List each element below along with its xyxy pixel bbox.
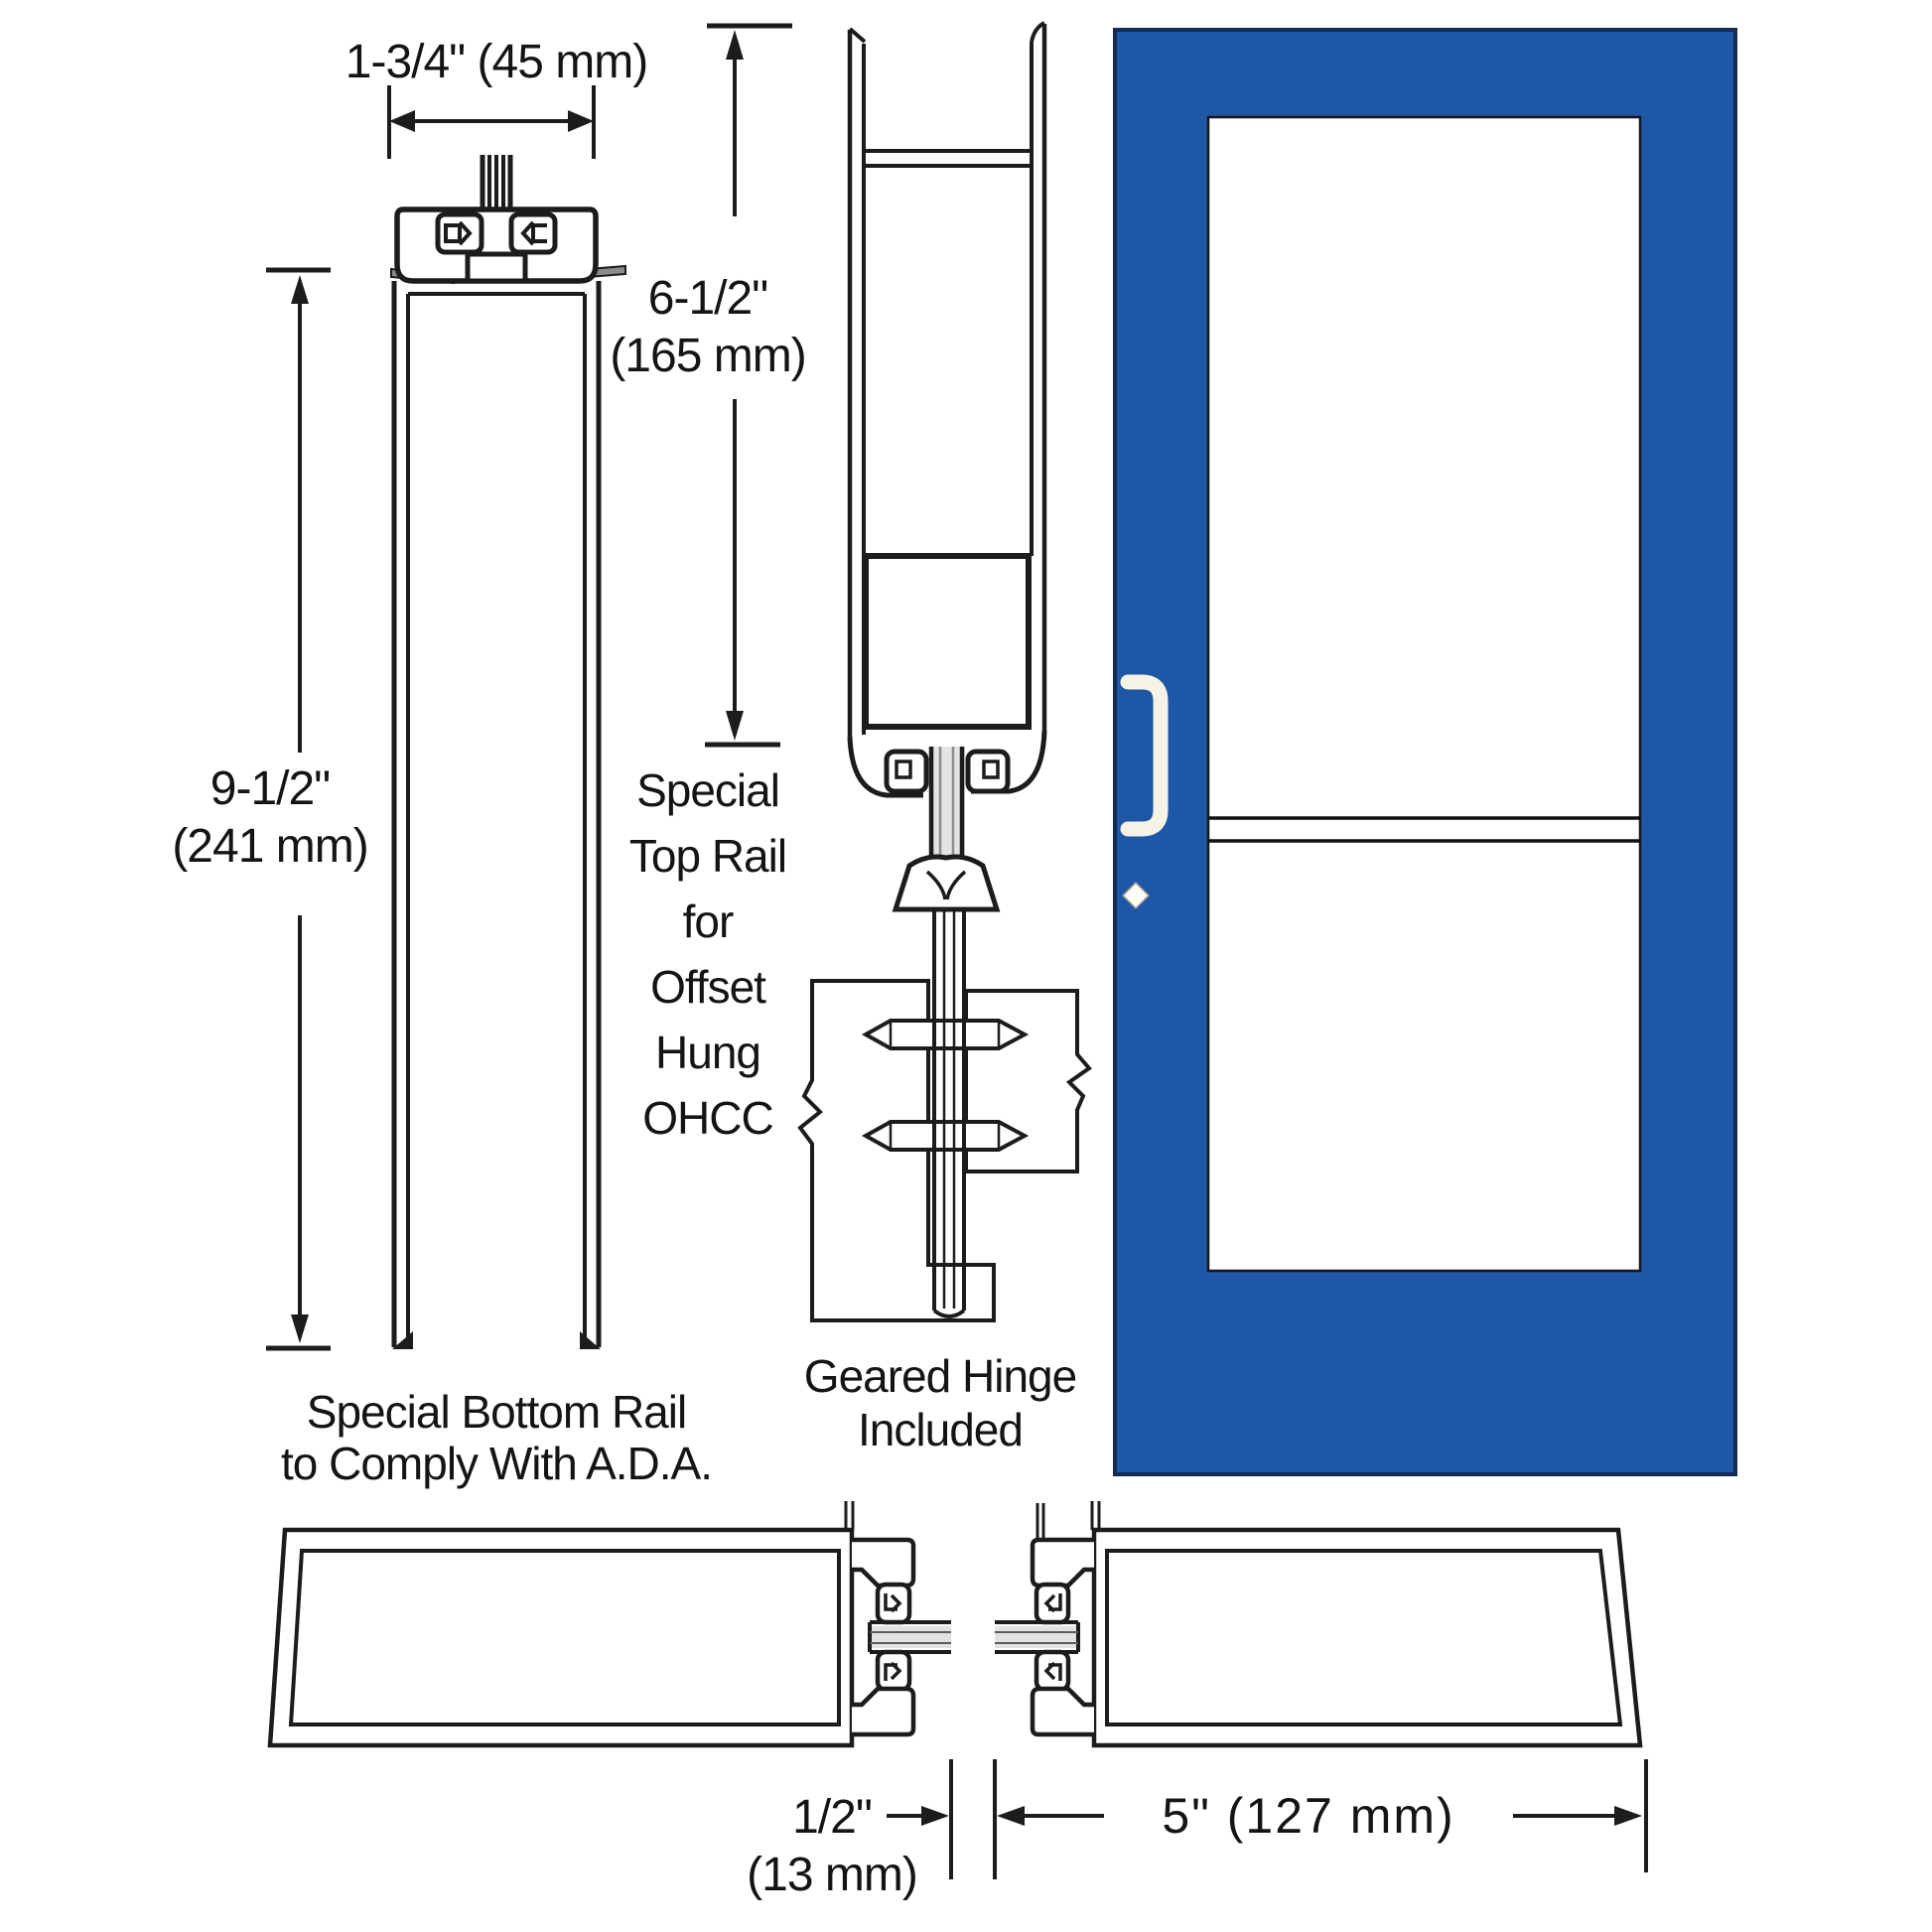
- clip-bottom-left: [878, 1652, 909, 1690]
- dimension-rail-width: 1-3/4" (45 mm): [345, 36, 647, 159]
- top-rail-caption-3: for: [683, 896, 734, 947]
- bottom-rail-section: 1-3/4" (45 mm): [172, 36, 712, 1489]
- arrow-up: [726, 30, 744, 60]
- top-rail-section: 6-1/2" (165 mm): [610, 23, 1089, 1455]
- rail-head: [391, 209, 625, 283]
- arrow-right: [568, 110, 594, 132]
- stile-section-left: [270, 1501, 951, 1745]
- dimension-bottom-rail-height: 9-1/2" (241 mm): [172, 270, 367, 1348]
- dimension-stile-width: 5" (127 mm): [997, 1759, 1646, 1872]
- clip-right: [968, 752, 1008, 791]
- door-technical-diagram: 1-3/4" (45 mm): [0, 0, 1932, 1932]
- hinge-cap: [896, 857, 997, 909]
- top-rail-height-mm: (165 mm): [610, 330, 805, 382]
- top-rail-profile: [850, 23, 1044, 860]
- hinge-caption-line2: Included: [858, 1404, 1023, 1455]
- stile-right-outer: [1094, 1530, 1640, 1745]
- dimension-top-rail-height: 6-1/2" (165 mm): [610, 26, 805, 745]
- top-rail-height-in: 6-1/2": [648, 272, 767, 325]
- door-illustration: [1115, 30, 1735, 1474]
- setting-block: [468, 254, 525, 281]
- arrow-right: [921, 1806, 949, 1826]
- arrow-down: [726, 711, 744, 741]
- rail-body: [392, 281, 601, 1349]
- glazing-pocket: [866, 556, 1029, 727]
- bracket-top-left: [852, 1540, 913, 1586]
- bracket-bottom-right: [1033, 1689, 1094, 1734]
- arrow-right: [1614, 1806, 1642, 1826]
- top-rail-caption-5: Hung: [655, 1027, 760, 1078]
- bottom-rail-caption-line1: Special Bottom Rail: [307, 1386, 686, 1438]
- bottom-rail-caption-line2: to Comply With A.D.A.: [281, 1438, 712, 1489]
- arrow-left: [997, 1806, 1025, 1826]
- stile-right-fins: [1037, 1501, 1099, 1540]
- geared-hinge: [800, 857, 1089, 1320]
- bottom-rail-caption: Special Bottom Rail to Comply With A.D.A…: [281, 1386, 712, 1489]
- clip-top-left: [878, 1585, 909, 1622]
- rail-body-outer-walls: [394, 281, 599, 1347]
- bottom-rail-height-in: 9-1/2": [210, 762, 330, 815]
- clip-top-right: [1036, 1585, 1068, 1622]
- diagram-page: 1-3/4" (45 mm): [0, 0, 1932, 1932]
- hinge-leaf-inner: [944, 909, 954, 1309]
- stile-left-outer: [270, 1530, 852, 1745]
- stile-width-label: 5" (127 mm): [1162, 1788, 1454, 1844]
- stile-left-fin: [846, 1501, 853, 1530]
- stile-sections: 1/2" (13 mm) 5" (127 mm): [270, 1501, 1646, 1901]
- clip-bottom-right: [1036, 1652, 1068, 1690]
- clip-left: [887, 752, 926, 791]
- top-rail-caption-4: Offset: [650, 961, 766, 1013]
- bottom-rail-height-mm: (241 mm): [172, 820, 367, 873]
- stile-gap-in: 1/2": [792, 1791, 872, 1844]
- witness-ticks: [705, 26, 792, 745]
- arrow-down: [291, 1314, 309, 1343]
- top-rail-caption-2: Top Rail: [629, 830, 786, 882]
- stile-section-right: [995, 1501, 1640, 1745]
- rail-body-inner-walls: [408, 294, 585, 1340]
- bracket-bottom-left: [852, 1689, 913, 1734]
- dimension-rail-width-label: 1-3/4" (45 mm): [345, 36, 647, 88]
- interlock-rung: [864, 151, 1032, 166]
- glass-stem-fill: [929, 747, 965, 860]
- top-rail-caption-6: OHCC: [642, 1092, 772, 1144]
- glazing-strip-left-fill: [870, 1626, 951, 1648]
- dimension-stile-gap: 1/2" (13 mm): [747, 1759, 995, 1901]
- arrow-left: [389, 110, 415, 132]
- witness-lines: [951, 1759, 995, 1879]
- hinge-caption-line1: Geared Hinge: [804, 1350, 1076, 1402]
- hinge-leaf-outer: [934, 909, 964, 1316]
- bracket-top-right: [1033, 1540, 1094, 1586]
- glazing-strip-right-fill: [995, 1626, 1078, 1648]
- arrow-up: [291, 275, 309, 304]
- door-glass: [1208, 117, 1640, 1271]
- geared-hinge-caption: Geared Hinge Included: [804, 1350, 1076, 1455]
- top-rail-caption-1: Special: [636, 764, 779, 816]
- top-rail-caption: Special Top Rail for Offset Hung OHCC: [629, 764, 786, 1144]
- stile-gap-mm: (13 mm): [747, 1849, 917, 1901]
